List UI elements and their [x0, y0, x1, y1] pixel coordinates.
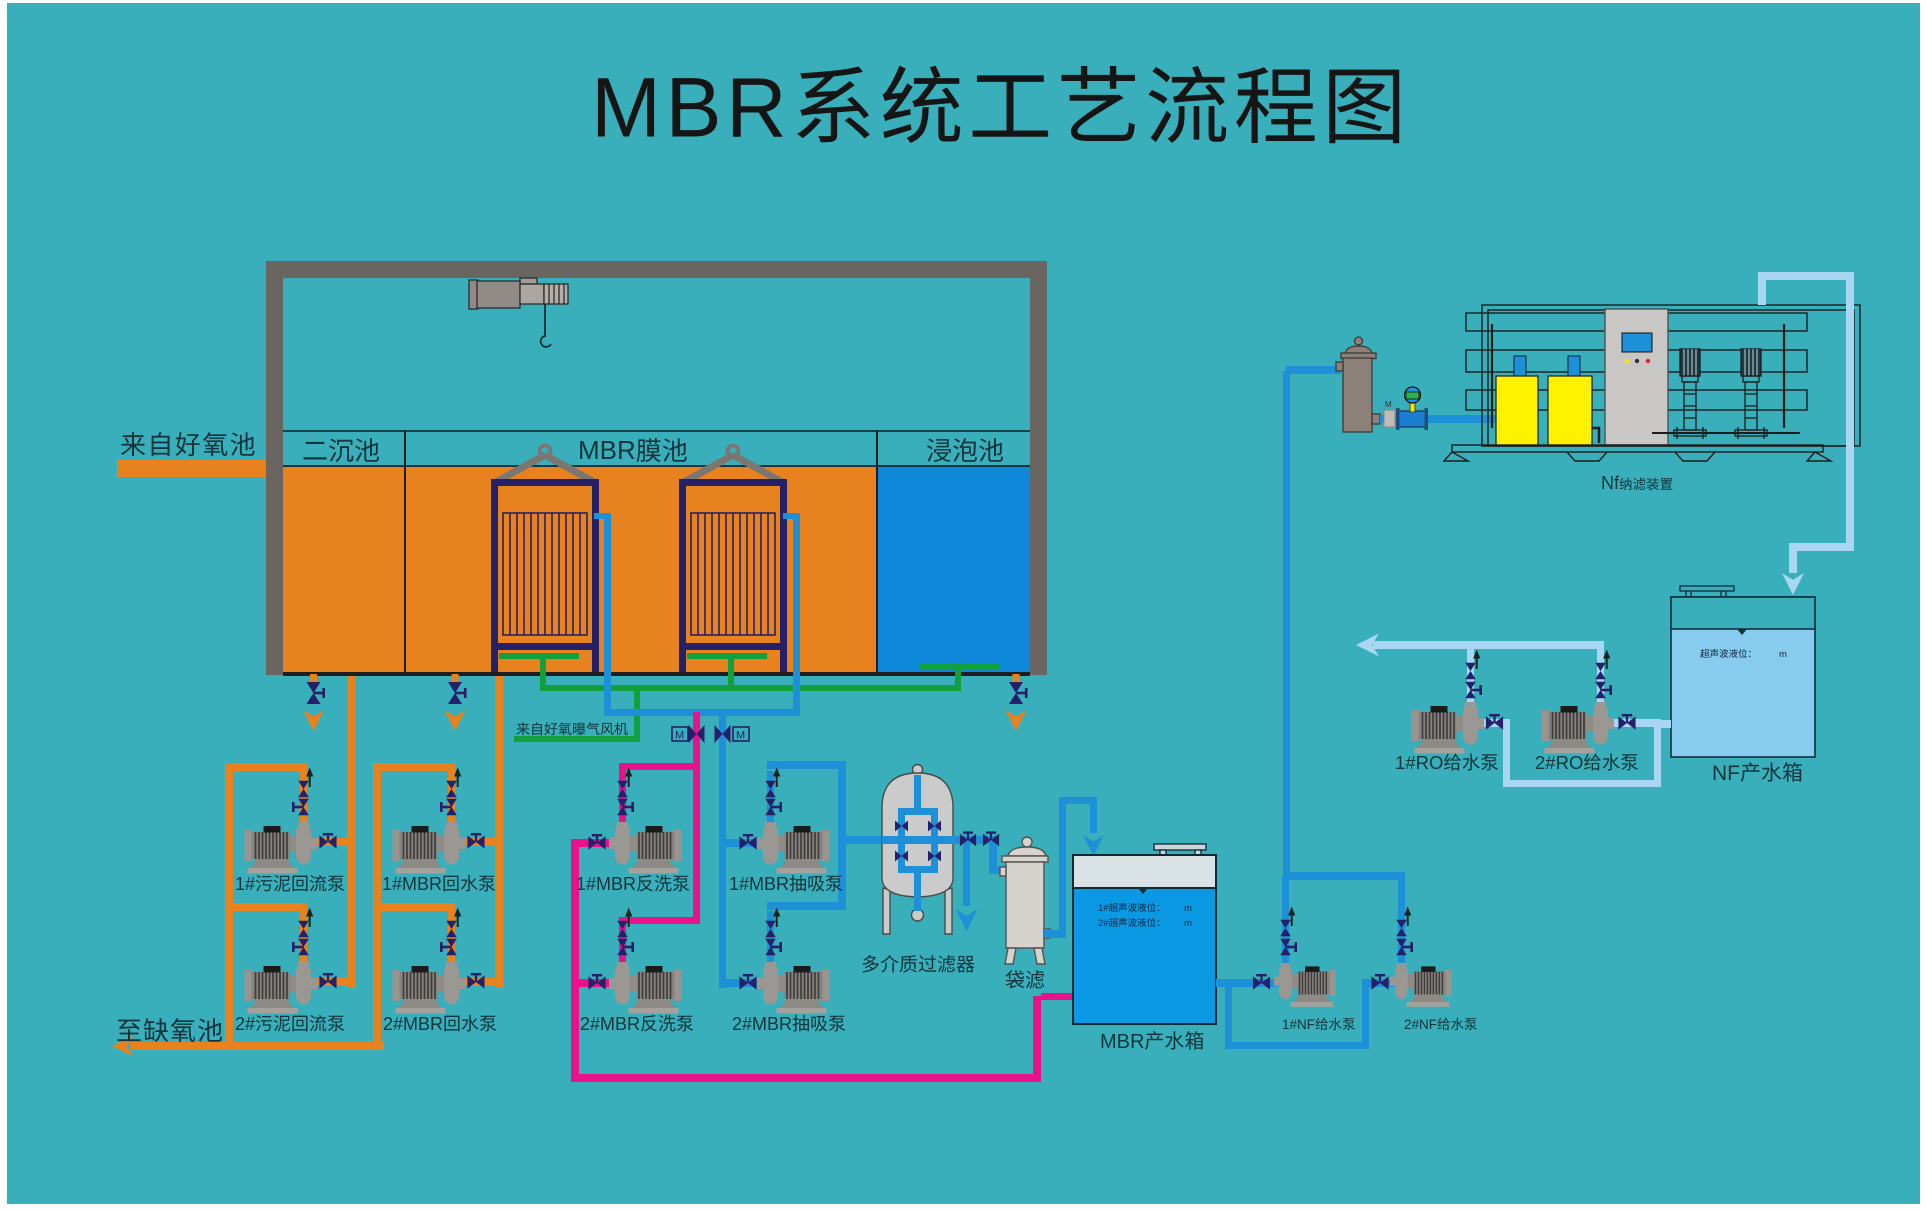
svg-text:M: M: [736, 730, 745, 742]
svg-text:NF: NF: [1712, 762, 1740, 785]
svg-text:1#MBR: 1#MBR: [729, 874, 789, 894]
svg-text:MBR: MBR: [578, 435, 636, 465]
svg-text:1#: 1#: [235, 874, 255, 894]
svg-text:M: M: [675, 730, 684, 742]
svg-text:m: m: [1184, 903, 1192, 914]
svg-text:m: m: [1779, 649, 1787, 660]
svg-text:2#RO: 2#RO: [1535, 752, 1583, 773]
svg-text:1#: 1#: [1098, 903, 1109, 914]
svg-text:1#MBR: 1#MBR: [382, 874, 442, 894]
svg-text:2#: 2#: [235, 1014, 255, 1034]
svg-text:MBR: MBR: [1100, 1031, 1144, 1053]
svg-text:1#RO: 1#RO: [1395, 752, 1443, 773]
svg-text:2#: 2#: [1098, 918, 1109, 929]
svg-text:1#NF: 1#NF: [1282, 1017, 1315, 1032]
svg-text:2#MBR: 2#MBR: [580, 1014, 640, 1034]
svg-text:2#MBR: 2#MBR: [732, 1014, 792, 1034]
svg-text:m: m: [1184, 918, 1192, 929]
svg-text:Nf: Nf: [1601, 473, 1620, 493]
svg-text:1#MBR: 1#MBR: [576, 874, 636, 894]
svg-text:2#NF: 2#NF: [1404, 1017, 1437, 1032]
svg-text:2#MBR: 2#MBR: [383, 1014, 443, 1034]
svg-text:M: M: [1385, 400, 1392, 409]
svg-text:MBR: MBR: [591, 61, 791, 155]
